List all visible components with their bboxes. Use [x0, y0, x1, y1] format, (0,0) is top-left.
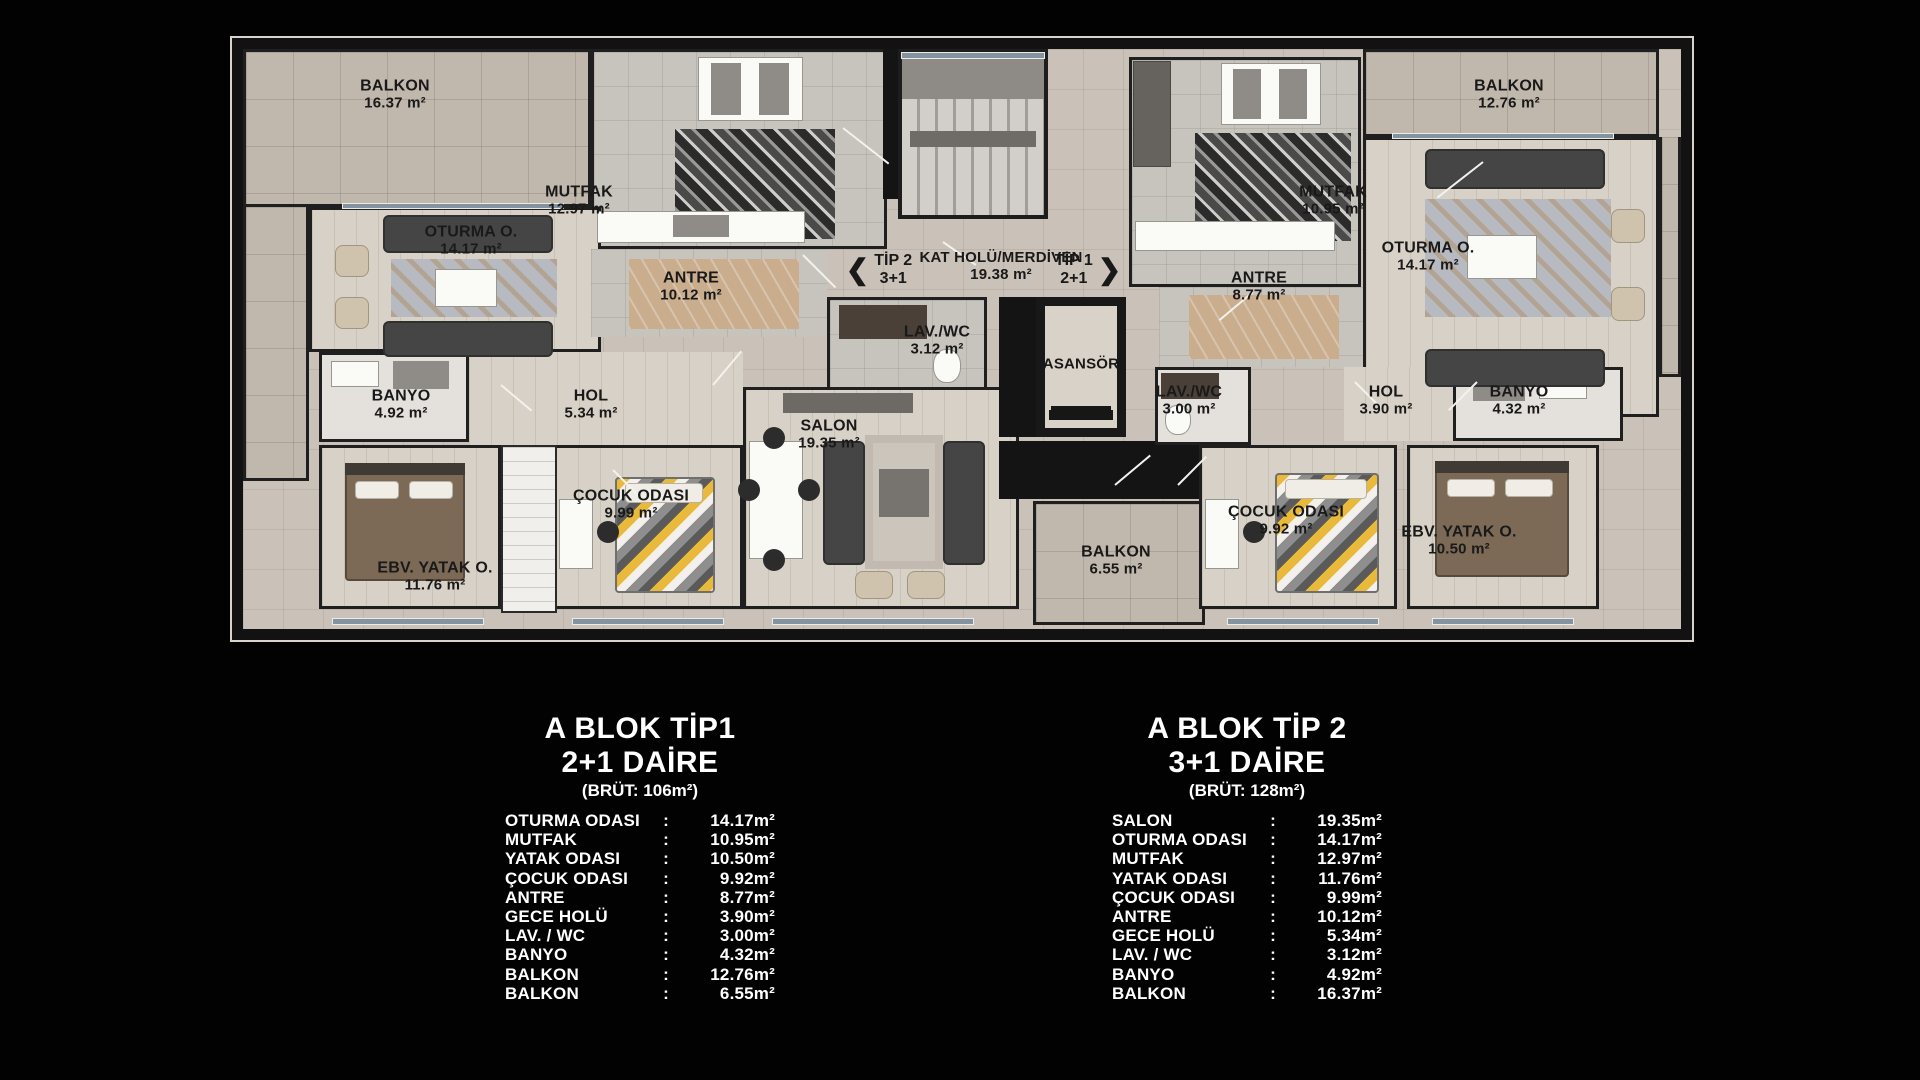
wall-block-core-left — [883, 49, 898, 199]
room-area: 14.17 m² — [425, 242, 518, 259]
chevron-right-icon: ❯ — [1098, 256, 1121, 284]
room-area: 10.12 m² — [660, 288, 722, 305]
floor-plan-page: { "colon": ":", "plan": { "rooms": [ {"i… — [0, 0, 1920, 1080]
sofa — [1425, 349, 1605, 387]
row-value: 19.35m² — [1290, 811, 1382, 830]
room-area: 16.37 m² — [360, 96, 430, 113]
row-label: BALKON — [505, 965, 649, 984]
room-name: LAV./WC — [1156, 383, 1222, 401]
armchair — [335, 245, 369, 277]
room-area: 6.55 m² — [1081, 562, 1151, 579]
table-row: YATAK ODASI:11.76m² — [1112, 869, 1382, 888]
room-area: 14.17 m² — [1382, 258, 1475, 275]
balkon-right-side-strip — [1659, 137, 1681, 377]
table-row: GECE HOLÜ:5.34m² — [1112, 926, 1382, 945]
room-area: 3.90 m² — [1359, 402, 1412, 419]
pillow — [1285, 479, 1367, 499]
window — [773, 619, 973, 624]
row-colon: : — [649, 984, 683, 1003]
salon-chair — [738, 479, 760, 501]
room-label-hol-right: HOL 3.90 m² — [1359, 383, 1412, 418]
row-value: 6.55m² — [683, 984, 775, 1003]
salon-chair — [763, 427, 785, 449]
spec-gross-area: (BRÜT: 106m²) — [505, 780, 775, 802]
coffee-table — [1467, 235, 1537, 279]
row-label: MUTFAK — [1112, 849, 1256, 868]
row-colon: : — [1256, 926, 1290, 945]
tv-unit — [783, 393, 913, 413]
row-value: 14.17m² — [683, 811, 775, 830]
row-colon: : — [649, 907, 683, 926]
kitchen-counter — [1135, 221, 1335, 251]
table-row: BALKON:6.55m² — [505, 984, 775, 1003]
row-label: ÇOCUK ODASI — [505, 869, 649, 888]
room-label-banyo-left: BANYO 4.92 m² — [372, 387, 431, 422]
room-label-cocuk-left: ÇOCUK ODASI 9.99 m² — [573, 487, 689, 522]
armchair — [335, 297, 369, 329]
pillow — [409, 481, 453, 499]
table-row: BALKON:12.76m² — [505, 965, 775, 984]
coffee-table — [879, 469, 929, 517]
kitchen-cabinet-right — [1133, 61, 1171, 167]
table-row: LAV. / WC:3.12m² — [1112, 945, 1382, 964]
dining-chair — [711, 63, 741, 115]
room-label-lavwc-left: LAV./WC 3.12 m² — [904, 323, 970, 358]
chevron-left-icon: ❮ — [846, 256, 869, 284]
dining-chair — [1233, 69, 1261, 119]
row-value: 11.76m² — [1290, 869, 1382, 888]
elevator-door — [1049, 410, 1113, 420]
room-name: ANTRE — [660, 269, 722, 287]
spec-table-tip2: A BLOK TİP 2 3+1 DAİRE (BRÜT: 128m²) SAL… — [1112, 712, 1382, 1003]
row-label: SALON — [1112, 811, 1256, 830]
room-area: 9.92 m² — [1228, 522, 1344, 539]
armchair — [855, 571, 893, 599]
row-label: BANYO — [505, 945, 649, 964]
coffee-table — [435, 269, 497, 307]
row-colon: : — [649, 869, 683, 888]
spec-title: A BLOK TİP1 — [505, 712, 775, 746]
table-row: ANTRE:10.12m² — [1112, 907, 1382, 926]
room-name: HOL — [1359, 383, 1412, 401]
room-label-antre-left: ANTRE 10.12 m² — [660, 269, 722, 304]
room-label-balkon-left: BALKON 16.37 m² — [360, 77, 430, 112]
pillow — [1505, 479, 1553, 497]
row-label: OTURMA ODASI — [1112, 830, 1256, 849]
unit-name: TİP 1 — [1055, 252, 1093, 269]
room-name: OTURMA O. — [1382, 239, 1475, 257]
row-value: 5.34m² — [1290, 926, 1382, 945]
room-name: BALKON — [1081, 543, 1151, 561]
room-name: EBV. YATAK O. — [1401, 523, 1516, 541]
row-label: ANTRE — [1112, 907, 1256, 926]
entry-rug — [1189, 295, 1339, 359]
armchair — [1611, 287, 1645, 321]
floor-plan: BALKON 16.37 m² MUTFAK 12.97 m² OTURMA O… — [232, 38, 1692, 640]
window — [1433, 619, 1573, 624]
room-label-oturma-left: OTURMA O. 14.17 m² — [425, 223, 518, 258]
room-label-banyo-right: BANYO 4.32 m² — [1490, 383, 1549, 418]
room-area: 11.76 m² — [377, 578, 492, 595]
row-value: 10.95m² — [683, 830, 775, 849]
room-name: HOL — [564, 387, 617, 405]
room-area: 8.77 m² — [1231, 288, 1287, 305]
row-colon: : — [1256, 888, 1290, 907]
room-label-mutfak-left: MUTFAK 12.97 m² — [545, 183, 613, 218]
table-row: OTURMA ODASI:14.17m² — [1112, 830, 1382, 849]
room-name: OTURMA O. — [425, 223, 518, 241]
room-area: 4.92 m² — [372, 406, 431, 423]
row-colon: : — [649, 849, 683, 868]
room-area: 9.99 m² — [573, 506, 689, 523]
spec-subtitle: 2+1 DAİRE — [505, 746, 775, 780]
room-label-mutfak-right: MUTFAK 10.95 m² — [1299, 183, 1367, 218]
room-name: LAV./WC — [904, 323, 970, 341]
room-label-salon: SALON 19.35 m² — [798, 417, 860, 452]
spec-table-tip1: A BLOK TİP1 2+1 DAİRE (BRÜT: 106m²) OTUR… — [505, 712, 775, 1003]
row-value: 3.12m² — [1290, 945, 1382, 964]
table-row: BANYO:4.32m² — [505, 945, 775, 964]
row-colon: : — [1256, 945, 1290, 964]
row-label: ÇOCUK ODASI — [1112, 888, 1256, 907]
spec-subtitle: 3+1 DAİRE — [1112, 746, 1382, 780]
row-label: ANTRE — [505, 888, 649, 907]
armchair — [907, 571, 945, 599]
pillow — [1447, 479, 1495, 497]
table-row: MUTFAK:10.95m² — [505, 830, 775, 849]
row-colon: : — [1256, 984, 1290, 1003]
cooktop — [673, 215, 729, 237]
row-label: GECE HOLÜ — [1112, 926, 1256, 945]
room-name: ÇOCUK ODASI — [1228, 503, 1344, 521]
row-colon: : — [649, 888, 683, 907]
room-area: 3.12 m² — [904, 342, 970, 359]
staircase — [898, 49, 1048, 219]
row-label: GECE HOLÜ — [505, 907, 649, 926]
room-label-cocuk-right: ÇOCUK ODASI 9.92 m² — [1228, 503, 1344, 538]
room-area: 5.34 m² — [564, 406, 617, 423]
row-value: 8.77m² — [683, 888, 775, 907]
row-value: 10.50m² — [683, 849, 775, 868]
spec-gross-area: (BRÜT: 128m²) — [1112, 780, 1382, 802]
row-label: BANYO — [1112, 965, 1256, 984]
row-value: 16.37m² — [1290, 984, 1382, 1003]
row-value: 14.17m² — [1290, 830, 1382, 849]
unit-marker-text: TİP 2 3+1 — [874, 252, 912, 288]
bathroom-sink — [331, 361, 379, 387]
room-label-ebv-right: EBV. YATAK O. 10.50 m² — [1401, 523, 1516, 558]
row-value: 3.90m² — [683, 907, 775, 926]
row-label: YATAK ODASI — [1112, 869, 1256, 888]
stair-landing — [910, 131, 1036, 147]
row-label: BALKON — [505, 984, 649, 1003]
row-colon: : — [1256, 965, 1290, 984]
spec-title: A BLOK TİP 2 — [1112, 712, 1382, 746]
row-label: LAV. / WC — [505, 926, 649, 945]
room-name: ANTRE — [1231, 269, 1287, 287]
sofa — [943, 441, 985, 565]
row-label: MUTFAK — [505, 830, 649, 849]
salon-dining-table — [749, 441, 803, 559]
row-colon: : — [649, 811, 683, 830]
row-colon: : — [1256, 849, 1290, 868]
table-row: ÇOCUK ODASI:9.99m² — [1112, 888, 1382, 907]
window — [333, 619, 483, 624]
room-label-oturma-right: OTURMA O. 14.17 m² — [1382, 239, 1475, 274]
room-name: MUTFAK — [1299, 183, 1367, 201]
room-name: BALKON — [360, 77, 430, 95]
row-value: 9.92m² — [683, 869, 775, 888]
room-balkon-left — [243, 49, 591, 207]
desk-chair — [597, 521, 619, 543]
window — [343, 204, 563, 208]
sofa — [1425, 149, 1605, 189]
room-name: BANYO — [1490, 383, 1549, 401]
shaft-block-center — [999, 441, 1203, 499]
sofa — [383, 321, 553, 357]
balkon-left-side-strip — [243, 207, 309, 481]
table-row: MUTFAK:12.97m² — [1112, 849, 1382, 868]
window — [902, 53, 1044, 58]
closet-left — [501, 445, 557, 613]
row-value: 4.32m² — [683, 945, 775, 964]
row-colon: : — [649, 926, 683, 945]
room-label-balkon-right: BALKON 12.76 m² — [1474, 77, 1544, 112]
row-value: 4.92m² — [1290, 965, 1382, 984]
table-row: OTURMA ODASI:14.17m² — [505, 811, 775, 830]
row-colon: : — [1256, 907, 1290, 926]
table-row: ANTRE:8.77m² — [505, 888, 775, 907]
window — [1228, 619, 1378, 624]
unit-marker-tip2: ❮ TİP 2 3+1 — [846, 252, 912, 288]
row-label: BALKON — [1112, 984, 1256, 1003]
row-colon: : — [1256, 869, 1290, 888]
room-name: SALON — [798, 417, 860, 435]
room-area: 4.32 m² — [1490, 402, 1549, 419]
shower — [393, 361, 449, 389]
table-row: YATAK ODASI:10.50m² — [505, 849, 775, 868]
headboard — [1435, 461, 1569, 473]
unit-marker-text: TİP 1 2+1 — [1055, 252, 1093, 288]
room-label-lavwc-right: LAV./WC 3.00 m² — [1156, 383, 1222, 418]
elevator-shaft-wall — [999, 297, 1036, 437]
room-area: 19.35 m² — [798, 436, 860, 453]
window — [1393, 134, 1613, 138]
room-area: 12.76 m² — [1474, 96, 1544, 113]
salon-chair — [763, 549, 785, 571]
row-value: 12.97m² — [1290, 849, 1382, 868]
unit-type: 2+1 — [1060, 270, 1087, 287]
room-name: MUTFAK — [545, 183, 613, 201]
room-label-ebv-left: EBV. YATAK O. 11.76 m² — [377, 559, 492, 594]
row-colon: : — [649, 830, 683, 849]
row-colon: : — [1256, 830, 1290, 849]
table-row: BANYO:4.92m² — [1112, 965, 1382, 984]
dining-chair — [1279, 69, 1307, 119]
table-row: LAV. / WC:3.00m² — [505, 926, 775, 945]
row-colon: : — [1256, 811, 1290, 830]
salon-chair — [798, 479, 820, 501]
room-area: 3.00 m² — [1156, 402, 1222, 419]
unit-marker-tip1: TİP 1 2+1 ❯ — [1055, 252, 1121, 288]
table-row: SALON:19.35m² — [1112, 811, 1382, 830]
room-name: BANYO — [372, 387, 431, 405]
table-row: BALKON:16.37m² — [1112, 984, 1382, 1003]
room-label-asansor: ASANSÖR — [1043, 357, 1119, 374]
window — [573, 619, 723, 624]
table-row: GECE HOLÜ:3.90m² — [505, 907, 775, 926]
unit-type: 3+1 — [880, 270, 907, 287]
room-area: 10.50 m² — [1401, 542, 1516, 559]
sofa — [823, 441, 865, 565]
row-value: 10.12m² — [1290, 907, 1382, 926]
dining-chair — [759, 63, 789, 115]
room-label-antre-right: ANTRE 8.77 m² — [1231, 269, 1287, 304]
table-row: ÇOCUK ODASI:9.92m² — [505, 869, 775, 888]
row-colon: : — [649, 945, 683, 964]
room-area: 10.95 m² — [1299, 202, 1367, 219]
headboard — [345, 463, 465, 475]
room-name: BALKON — [1474, 77, 1544, 95]
room-name: ASANSÖR — [1043, 357, 1119, 374]
row-value: 9.99m² — [1290, 888, 1382, 907]
pillow — [355, 481, 399, 499]
unit-name: TİP 2 — [874, 252, 912, 269]
row-colon: : — [649, 965, 683, 984]
row-label: OTURMA ODASI — [505, 811, 649, 830]
room-label-hol-left: HOL 5.34 m² — [564, 387, 617, 422]
room-area: 12.97 m² — [545, 202, 613, 219]
room-label-balkon-mid: BALKON 6.55 m² — [1081, 543, 1151, 578]
row-label: LAV. / WC — [1112, 945, 1256, 964]
row-label: YATAK ODASI — [505, 849, 649, 868]
row-value: 3.00m² — [683, 926, 775, 945]
room-name: EBV. YATAK O. — [377, 559, 492, 577]
room-name: ÇOCUK ODASI — [573, 487, 689, 505]
armchair — [1611, 209, 1645, 243]
row-value: 12.76m² — [683, 965, 775, 984]
